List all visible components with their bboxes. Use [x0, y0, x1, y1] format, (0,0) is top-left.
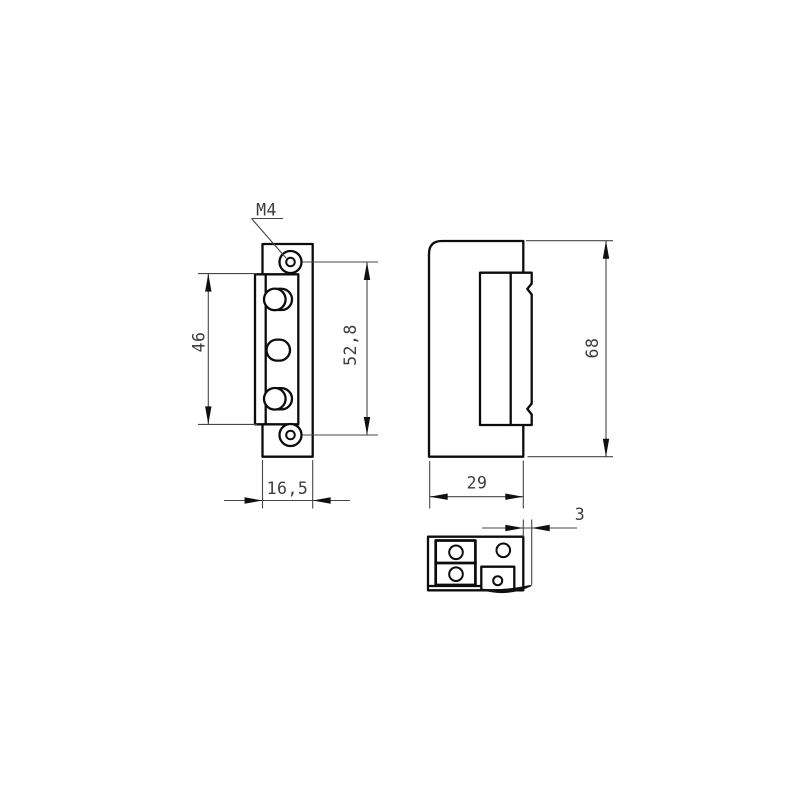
- keeper-block-outline: [480, 273, 532, 425]
- arrow-down-icon: [205, 406, 211, 424]
- arrow-down-icon: [364, 417, 370, 435]
- latch-block: [481, 567, 514, 591]
- dimension-label-52-8: 52,8: [341, 324, 360, 366]
- dimension-label-16-5: 16,5: [267, 479, 309, 498]
- arrow-left-icon: [430, 494, 448, 500]
- arrow-up-icon: [205, 274, 211, 292]
- dimension-label-46: 46: [190, 332, 209, 353]
- technical-drawing-canvas: M4 46 52,8 16,5: [0, 0, 800, 800]
- dimension-body-height: 46: [190, 274, 258, 425]
- roller-middle: [267, 340, 291, 361]
- dimension-label-29: 29: [467, 474, 488, 493]
- dimension-overall-height: 68: [526, 241, 613, 457]
- solenoid-cells: [436, 541, 476, 586]
- arrow-right-icon: [245, 497, 263, 503]
- arrow-up-icon: [364, 262, 370, 280]
- arrow-right-icon: [505, 494, 523, 500]
- front-view: [255, 244, 313, 457]
- arrow-left-icon: [313, 497, 331, 503]
- pivot-hole: [497, 544, 511, 558]
- bottom-view: [428, 537, 531, 593]
- dimension-body-depth: 29: [430, 461, 524, 509]
- dimension-faceplate-width: 16,5: [224, 460, 350, 509]
- dimension-label-68: 68: [583, 338, 602, 359]
- side-view: [429, 241, 532, 457]
- dimension-label-3: 3: [575, 505, 585, 524]
- thread-label: M4: [256, 201, 277, 220]
- roller-bottom: [264, 388, 292, 410]
- screw-hole-bottom: [280, 424, 302, 446]
- arrow-down-icon: [603, 439, 609, 457]
- arrow-left-icon: [532, 525, 550, 531]
- arrow-right-icon: [505, 525, 523, 531]
- roller-top: [264, 289, 292, 311]
- drawing-sheet: M4 46 52,8 16,5: [0, 0, 800, 800]
- arrow-up-icon: [603, 241, 609, 259]
